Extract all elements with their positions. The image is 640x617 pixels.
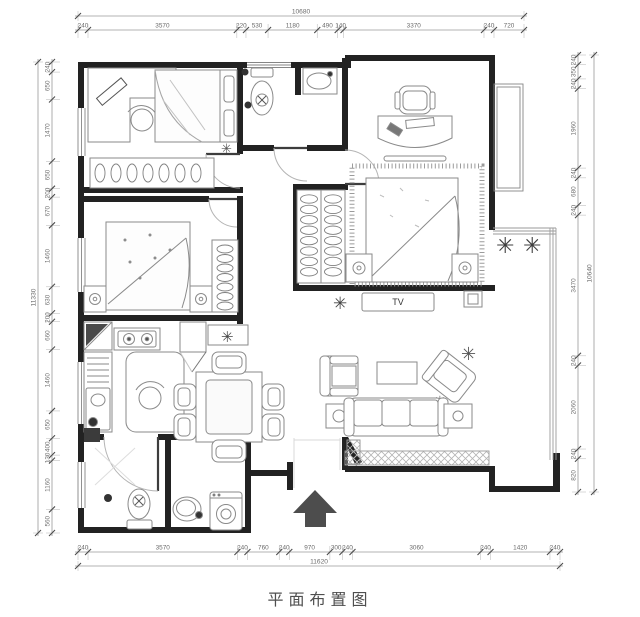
dim-label: 490 <box>322 23 333 30</box>
dining-table <box>196 372 262 442</box>
left-dimension-line: 2406501470650200670146063020066014606504… <box>31 59 61 536</box>
bathroom1-sink <box>303 68 337 94</box>
bathroom2-toilet <box>127 489 152 529</box>
dim-label: 1460 <box>45 373 52 388</box>
living-armchair-left <box>320 356 358 396</box>
bedroom2-wardrobe <box>212 240 238 312</box>
bedroom1-chair <box>128 106 157 131</box>
dim-label: 630 <box>45 294 52 305</box>
balcony-glazing <box>493 228 556 460</box>
right-dimension-line: 2403502401960240680240347024020602408201… <box>571 52 600 495</box>
bedroom2-bed <box>106 222 190 310</box>
kitchen-hob <box>114 328 160 350</box>
dim-label: 680 <box>571 186 578 197</box>
dim-label: 1470 <box>45 123 52 138</box>
dim-label: 240 <box>279 545 290 552</box>
dim-label: 1160 <box>45 478 52 492</box>
dim-total-label: 10640 <box>587 264 594 283</box>
dining-chair <box>262 414 284 440</box>
dim-label: 240 <box>571 167 578 178</box>
master-desk <box>378 116 452 148</box>
dim-label: 720 <box>504 23 515 30</box>
living-side-table-right <box>444 404 472 428</box>
washing-machine <box>210 492 242 530</box>
bedroom2-door <box>209 199 237 227</box>
plant-icon: ✳ <box>523 233 541 258</box>
dining-chair <box>262 384 284 410</box>
dim-label: 240 <box>484 23 495 30</box>
dim-label: 820 <box>571 470 578 481</box>
dim-total-label: 11330 <box>31 288 38 306</box>
dim-label: 130 <box>45 452 52 463</box>
dim-label: 2060 <box>571 400 578 415</box>
plant-icon: ✳ <box>496 233 514 258</box>
dim-label: 3060 <box>409 545 424 552</box>
dim-total-label: 11620 <box>310 559 328 566</box>
dim-label: 760 <box>258 545 269 552</box>
dim-label: 400 <box>45 441 52 452</box>
dim-label: 1180 <box>286 23 300 30</box>
media-box <box>464 291 482 307</box>
top-dimension-line: 24035702205301180490140337024072010680 <box>75 9 527 39</box>
bedroom2-nightstand-left <box>84 286 106 312</box>
dim-label: 660 <box>45 330 52 341</box>
dining-chair <box>174 384 196 410</box>
master-shelf <box>384 156 446 161</box>
bottom-dimension-line: 2403570240760240970300240306024014202401… <box>75 545 563 572</box>
entry-closet <box>347 440 360 464</box>
dim-label: 970 <box>304 545 315 552</box>
bay-window <box>494 84 523 191</box>
dining-chair <box>212 352 246 374</box>
dim-label: 300 <box>331 545 342 552</box>
dim-label: 240 <box>571 355 578 366</box>
laundry-sink <box>173 497 203 521</box>
plant-icon: ✳ <box>333 294 347 313</box>
dim-label: 3570 <box>155 23 170 30</box>
dim-label: 240 <box>480 545 491 552</box>
kitchen-appliance <box>84 428 100 442</box>
kitchen-counter <box>84 352 112 432</box>
dim-label: 1960 <box>571 121 578 136</box>
dim-label: 240 <box>550 545 561 552</box>
master-desk-chair <box>395 86 435 114</box>
tv-label: TV <box>392 297 404 307</box>
entrance-arrow-icon <box>293 490 337 527</box>
entry-threshold <box>294 438 340 488</box>
master-wardrobe <box>297 190 345 283</box>
dim-label: 240 <box>78 545 89 552</box>
dim-label: 560 <box>45 515 52 526</box>
dim-label: 1420 <box>513 545 528 552</box>
dim-total-label: 10680 <box>292 9 311 16</box>
bedroom1-wardrobe <box>90 158 214 188</box>
living-coffee-table <box>377 362 417 384</box>
plant-icon: ✳ <box>221 329 234 346</box>
dim-label: 240 <box>571 204 578 215</box>
master-bed <box>366 178 459 282</box>
dim-label: 200 <box>45 187 52 198</box>
dim-label: 650 <box>45 419 52 430</box>
plant-icon: ✳ <box>221 141 232 156</box>
dim-label: 650 <box>45 80 52 91</box>
bathroom1-door <box>274 148 307 181</box>
bathroom2-shower-lines <box>95 448 135 485</box>
dim-label: 240 <box>571 78 578 89</box>
dim-label: 350 <box>571 66 578 77</box>
dim-label: 1460 <box>45 248 52 263</box>
floor-plan-page: 24035702205301180490140337024072010680 2… <box>0 0 640 617</box>
master-nightstand-left <box>346 254 372 282</box>
dim-label: 670 <box>45 205 52 216</box>
dim-label: 240 <box>237 545 248 552</box>
dim-label: 240 <box>571 448 578 459</box>
bathroom1-toilet <box>251 68 273 115</box>
kitchen-corner-cabinet <box>84 322 112 350</box>
bedroom2-nightstand-right <box>190 286 212 312</box>
dining-chair <box>212 440 246 462</box>
dim-label: 530 <box>252 23 263 30</box>
floor-plan-canvas: 24035702205301180490140337024072010680 2… <box>0 0 640 617</box>
dim-label: 3570 <box>156 545 171 552</box>
dim-label: 220 <box>236 23 247 30</box>
master-nightstand-right <box>452 254 478 282</box>
dim-label: 3470 <box>571 278 578 293</box>
window-bath2-left <box>77 462 85 508</box>
floor-drain-icon <box>245 102 252 109</box>
bedroom1-bed <box>155 70 237 142</box>
dim-label: 240 <box>45 61 52 72</box>
living-room-window-band <box>345 451 489 465</box>
dim-label: 140 <box>335 23 346 30</box>
dim-label: 240 <box>78 23 89 30</box>
living-sofa <box>344 398 448 436</box>
plan-title: 平面布置图 <box>0 586 640 610</box>
dim-label: 240 <box>571 54 578 65</box>
dim-label: 3370 <box>407 23 422 30</box>
plant-icon: ✳ <box>461 344 476 364</box>
window-bedroom1-left <box>77 108 85 156</box>
floor-drain-icon <box>104 494 112 502</box>
dim-label: 200 <box>45 312 52 323</box>
window-bedroom2-left <box>77 238 85 292</box>
dim-label: 650 <box>45 169 52 180</box>
dining-chair <box>174 414 196 440</box>
dim-label: 240 <box>342 545 353 552</box>
floor-drain-icon <box>242 69 249 76</box>
